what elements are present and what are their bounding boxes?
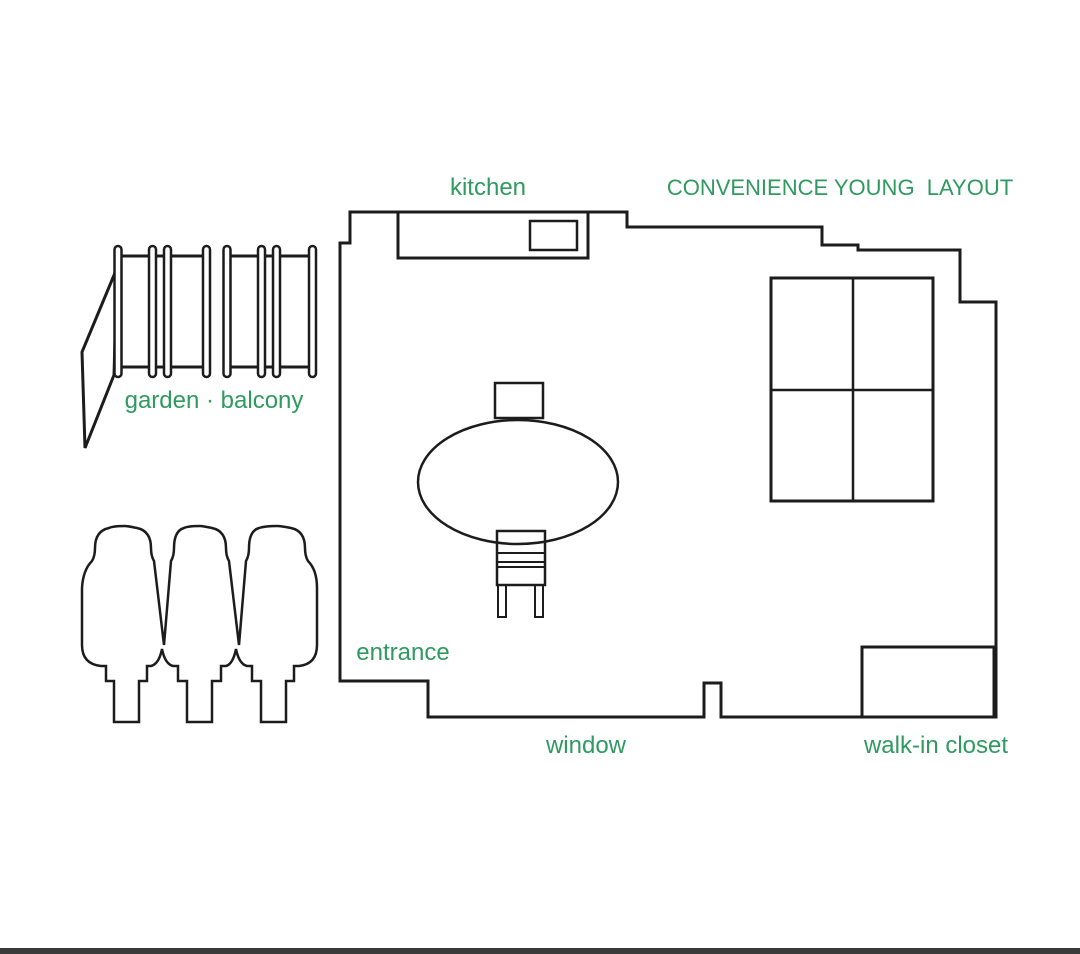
fence-post <box>164 246 171 377</box>
chair-leg-left <box>498 585 506 617</box>
fence-post <box>309 246 316 377</box>
walk-in-closet-outline <box>862 647 994 717</box>
bed <box>771 278 933 501</box>
chair-leg-right <box>535 585 543 617</box>
walk-in-closet-label: walk-in closet <box>864 732 1008 761</box>
fence-post <box>203 246 210 377</box>
fence-post <box>258 246 265 377</box>
fence-post <box>224 246 231 377</box>
fence-posts <box>115 246 317 377</box>
chair-back <box>497 531 545 585</box>
window-label: window <box>546 732 626 761</box>
fence-post <box>273 246 280 377</box>
kitchen-sink <box>530 221 577 250</box>
fence-rails <box>118 256 313 367</box>
chair-slats <box>497 553 545 567</box>
fence-post <box>149 246 156 377</box>
stool <box>495 383 543 418</box>
floorplan-drawing <box>0 0 1080 954</box>
fence-gate <box>82 268 117 448</box>
garden-plants <box>82 526 317 722</box>
page-title: CONVENIENCE YOUNG LAYOUT <box>667 175 1013 201</box>
floorplan-canvas: kitchen CONVENIENCE YOUNG LAYOUT garden … <box>0 0 1080 954</box>
dining-table-group <box>418 383 618 617</box>
entrance-label: entrance <box>356 639 449 668</box>
bottom-edge-bar <box>0 948 1080 954</box>
balcony-fence <box>82 246 316 448</box>
fence-post <box>115 246 122 377</box>
dining-table <box>418 420 618 544</box>
kitchen-counter <box>398 212 588 258</box>
garden-balcony-label: garden · balcony <box>125 387 304 416</box>
kitchen-label: kitchen <box>450 174 526 203</box>
